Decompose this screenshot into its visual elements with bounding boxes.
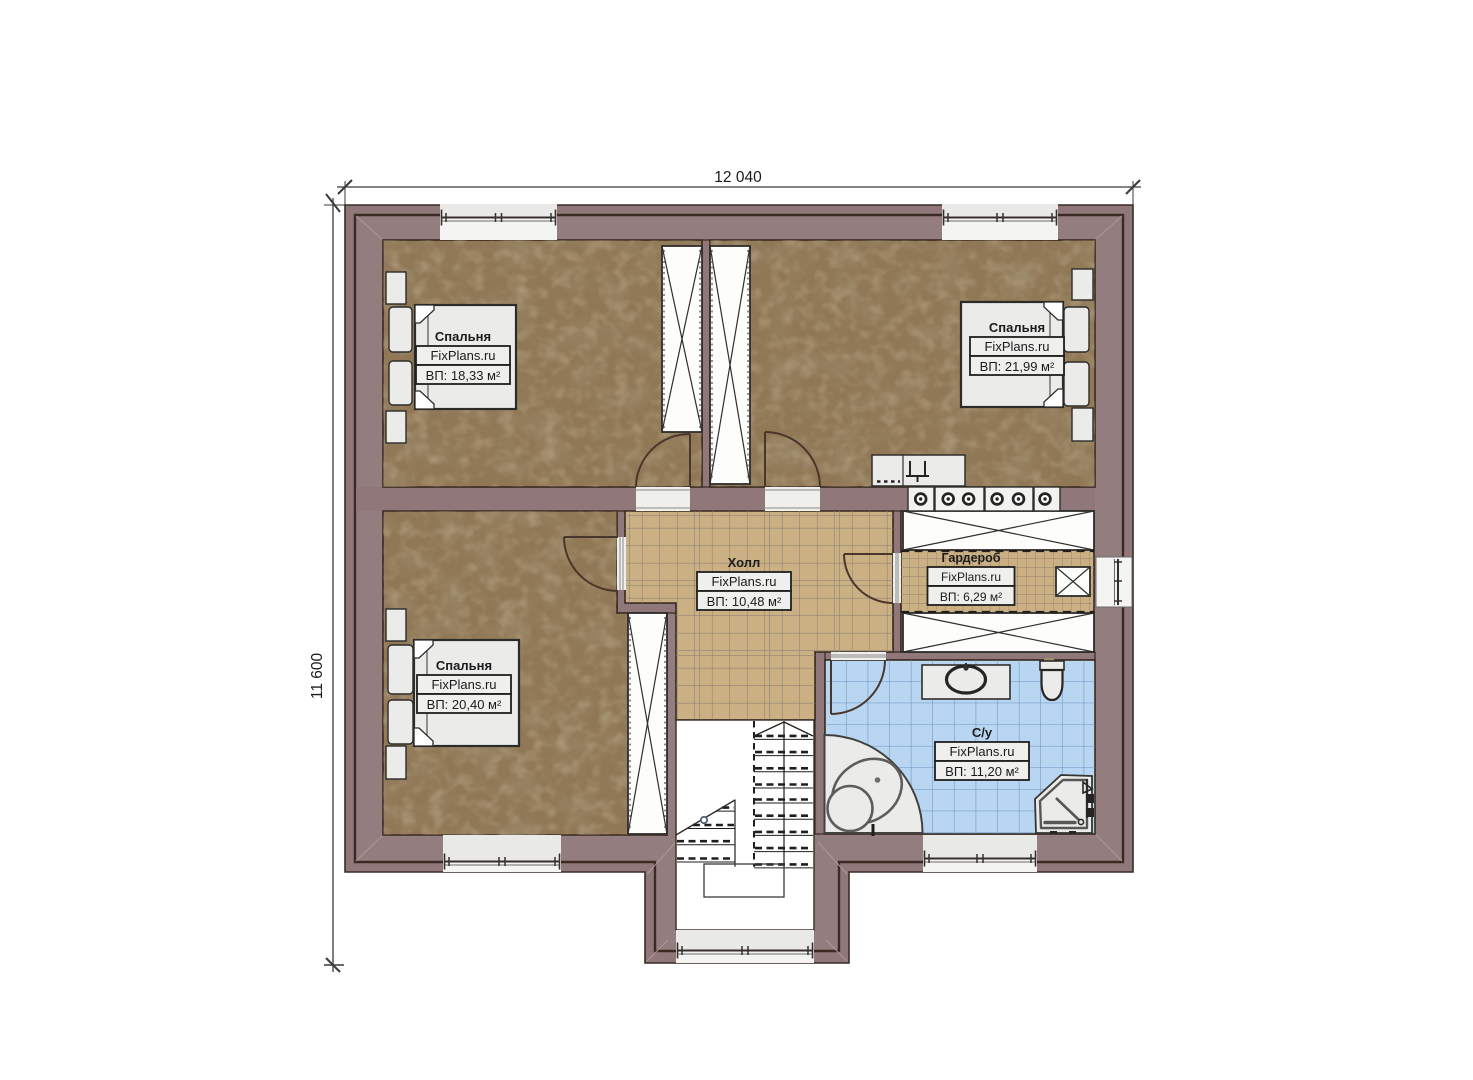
svg-text:ВП: 18,33 м²: ВП: 18,33 м² xyxy=(426,368,501,383)
svg-text:ВП: 6,29 м²: ВП: 6,29 м² xyxy=(940,590,1002,604)
svg-text:FixPlans.ru: FixPlans.ru xyxy=(941,570,1001,584)
svg-text:FixPlans.ru: FixPlans.ru xyxy=(430,348,495,363)
svg-text:Спальня: Спальня xyxy=(436,658,492,673)
svg-text:Спальня: Спальня xyxy=(435,329,491,344)
svg-text:FixPlans.ru: FixPlans.ru xyxy=(949,744,1014,759)
svg-text:Спальня: Спальня xyxy=(989,320,1045,335)
svg-text:11 600: 11 600 xyxy=(309,652,326,699)
svg-text:FixPlans.ru: FixPlans.ru xyxy=(711,574,776,589)
svg-text:ВП: 11,20 м²: ВП: 11,20 м² xyxy=(945,764,1019,779)
svg-text:С/у: С/у xyxy=(972,725,993,740)
svg-text:ВП: 10,48 м²: ВП: 10,48 м² xyxy=(707,594,782,609)
svg-text:FixPlans.ru: FixPlans.ru xyxy=(984,339,1049,354)
svg-text:Гардероб: Гардероб xyxy=(941,551,1000,565)
svg-text:ВП: 20,40 м²: ВП: 20,40 м² xyxy=(427,697,502,712)
svg-text:ВП: 21,99 м²: ВП: 21,99 м² xyxy=(980,359,1055,374)
svg-text:12 040: 12 040 xyxy=(714,169,762,186)
svg-text:FixPlans.ru: FixPlans.ru xyxy=(431,677,496,692)
svg-text:Холл: Холл xyxy=(728,555,761,570)
